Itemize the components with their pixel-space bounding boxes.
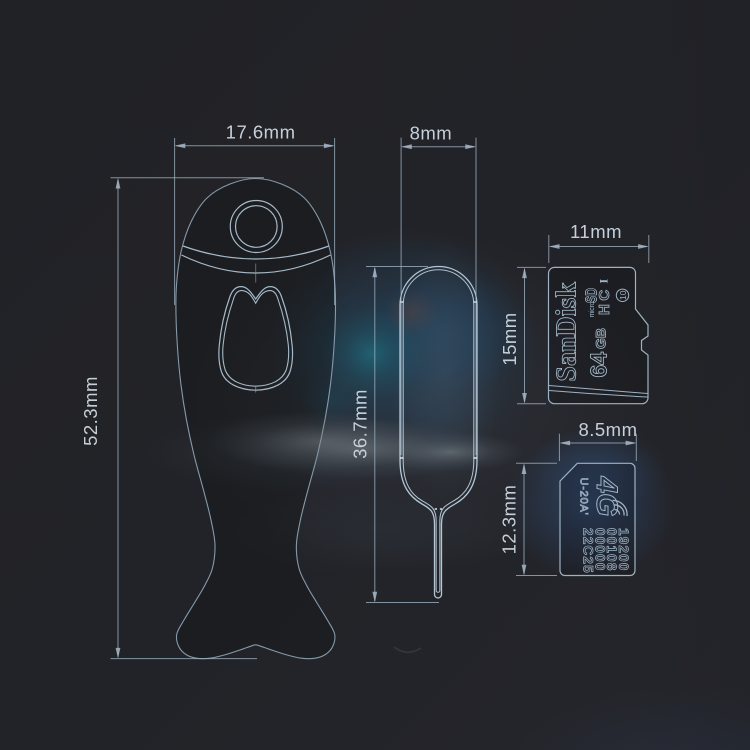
svg-text:U-20A': U-20A'	[578, 477, 590, 515]
svg-text:10: 10	[618, 290, 628, 300]
svg-text:11mm: 11mm	[570, 221, 622, 242]
svg-text:12.3mm: 12.3mm	[499, 485, 520, 555]
svg-text:36.7mm: 36.7mm	[350, 389, 371, 459]
svg-text:8mm: 8mm	[410, 122, 453, 143]
svg-text:HC: HC	[596, 286, 613, 315]
svg-text:64: 64	[586, 352, 612, 378]
svg-text:17.6mm: 17.6mm	[226, 121, 296, 142]
svg-text:15mm: 15mm	[499, 312, 520, 365]
svg-text:GB: GB	[593, 328, 609, 349]
svg-text:I: I	[597, 279, 611, 284]
svg-text:52.3mm: 52.3mm	[80, 376, 101, 446]
svg-text:22C25: 22C25	[581, 528, 596, 574]
svg-text:SanDisk: SanDisk	[552, 282, 583, 382]
svg-text:8.5mm: 8.5mm	[578, 419, 637, 440]
